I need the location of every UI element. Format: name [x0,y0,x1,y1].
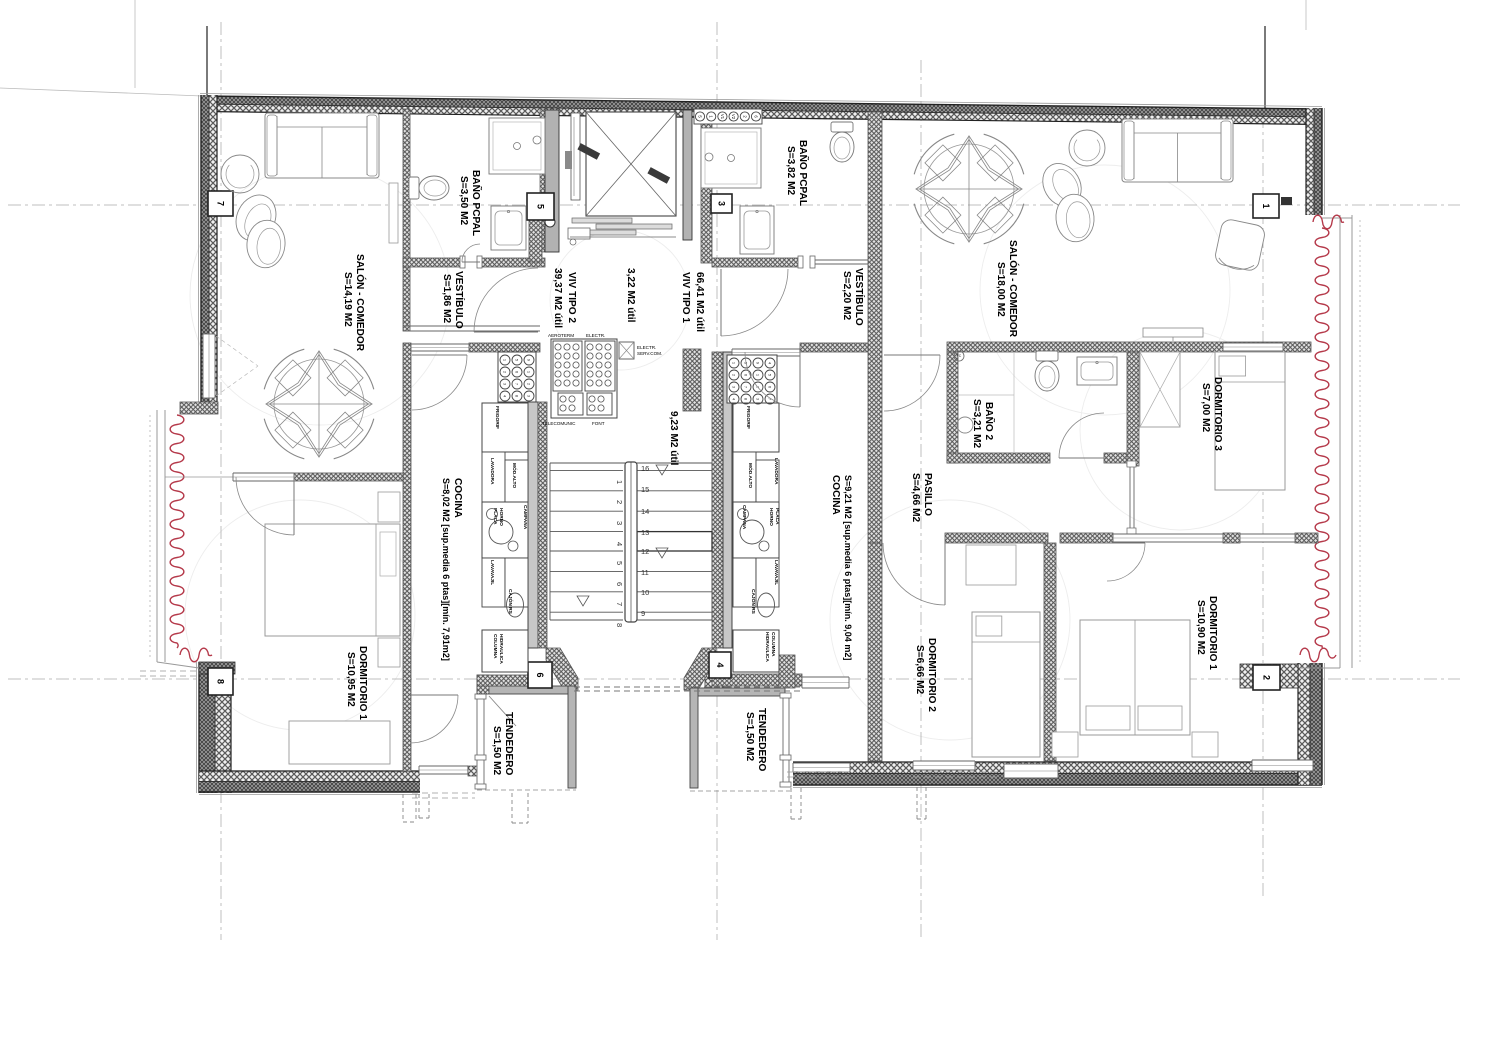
svg-text:V2: V2 [731,114,736,120]
svg-text:39,37 M2 útil: 39,37 M2 útil [552,268,563,328]
svg-text:VIV TIPO 1: VIV TIPO 1 [680,272,691,323]
svg-text:FC: FC [957,354,962,358]
svg-text:TELECOMUNIC: TELECOMUNIC [542,421,576,426]
svg-text:HIDRAULICA: HIDRAULICA [498,634,504,664]
svg-text:1: 1 [1261,203,1271,208]
svg-text:3: 3 [615,521,624,525]
svg-text:2: 2 [1262,675,1272,680]
svg-text:CAMPANA: CAMPANA [741,505,747,530]
svg-text:SERV.COM.: SERV.COM. [637,351,662,356]
svg-text:COLUMNA: COLUMNA [770,632,776,657]
svg-text:VESTÍBULO: VESTÍBULO [453,271,466,329]
svg-text:VIV TIPO 2: VIV TIPO 2 [566,272,577,323]
svg-text:S=3,50 M2: S=3,50 M2 [458,176,469,225]
svg-text:TENDEDERO: TENDEDERO [503,712,514,776]
svg-text:2: 2 [615,500,624,504]
svg-text:15: 15 [641,485,649,494]
svg-text:12: 12 [641,547,649,556]
svg-text:CAMPANA: CAMPANA [522,505,528,530]
svg-text:PLACA: PLACA [492,508,498,525]
svg-text:DORMITORIO 1: DORMITORIO 1 [357,646,368,720]
svg-text:FONT: FONT [592,421,605,426]
svg-text:COCINA: COCINA [452,478,463,519]
svg-text:BAÑO 2: BAÑO 2 [983,402,996,441]
svg-text:S=14,19 M2: S=14,19 M2 [342,272,353,327]
svg-text:6: 6 [615,582,624,586]
svg-text:1: 1 [615,480,624,484]
svg-text:FRIGORIF: FRIGORIF [745,406,751,429]
svg-text:LAVAVAJIL: LAVAVAJIL [773,560,779,585]
svg-text:COCINA: COCINA [830,475,841,516]
svg-text:BAÑO PCPAL: BAÑO PCPAL [797,140,810,206]
svg-text:4: 4 [715,662,725,667]
svg-text:7: 7 [216,201,226,206]
svg-text:14: 14 [641,507,649,516]
svg-text:ELECTR.: ELECTR. [586,333,605,338]
svg-text:AEROTERM: AEROTERM [548,333,574,338]
svg-text:S=10,90 M2: S=10,90 M2 [1195,600,1206,655]
svg-text:S=6,66 M2: S=6,66 M2 [914,645,925,694]
svg-text:VESTÍBULO: VESTÍBULO [853,268,866,326]
svg-text:HORNO: HORNO [498,508,504,526]
svg-text:3,22 M2 útil: 3,22 M2 útil [625,268,636,323]
svg-text:13: 13 [641,528,649,537]
svg-text:ELECTR.: ELECTR. [637,345,656,350]
svg-text:S=18,00 M2: S=18,00 M2 [995,262,1006,317]
svg-text:DORMITORIO 2: DORMITORIO 2 [926,638,937,712]
svg-text:V1: V1 [720,114,725,120]
svg-text:S=10,95 M2: S=10,95 M2 [345,652,356,707]
svg-text:LAVAVAJIL: LAVAVAJIL [489,560,495,585]
svg-text:FRIGORIF: FRIGORIF [494,406,500,429]
svg-text:5: 5 [615,561,624,565]
svg-text:6: 6 [535,672,545,677]
svg-text:S=1,50 M2: S=1,50 M2 [744,712,755,761]
svg-text:S=1,86 M2: S=1,86 M2 [441,274,452,323]
svg-text:9: 9 [641,609,645,618]
svg-text:S=1,50 M2: S=1,50 M2 [491,726,502,775]
svg-text:SALÓN - COMEDOR: SALÓN - COMEDOR [354,254,367,352]
svg-text:LAVADORA: LAVADORA [489,458,495,485]
svg-text:7: 7 [615,602,624,606]
svg-text:PLACA: PLACA [774,508,780,525]
svg-text:HORNO: HORNO [768,508,774,526]
svg-text:66,41 M2 útil: 66,41 M2 útil [694,272,705,332]
svg-text:HIDRAULICA: HIDRAULICA [764,632,770,662]
svg-text:3: 3 [717,201,727,206]
svg-text:16: 16 [641,464,649,473]
svg-text:COLUMNA: COLUMNA [492,634,498,659]
svg-text:10: 10 [641,588,649,597]
svg-text:S=3,82 M2: S=3,82 M2 [785,146,796,195]
svg-text:PASILLO: PASILLO [922,473,933,516]
svg-text:S=9,21 M2 [sup.media 6 ptas][m: S=9,21 M2 [sup.media 6 ptas][mín. 9,04 m… [843,475,853,660]
svg-text:S=8,02 M2 [sup.media 6 ptas][m: S=8,02 M2 [sup.media 6 ptas][mín. 7,91m2… [441,478,451,661]
svg-text:BAÑO PCPAL: BAÑO PCPAL [470,170,483,236]
svg-text:5: 5 [536,204,546,209]
svg-text:S=7,00 M2: S=7,00 M2 [1200,383,1211,432]
svg-text:S=4,66 M2: S=4,66 M2 [910,473,921,522]
svg-text:11: 11 [641,568,649,577]
svg-text:4: 4 [615,542,624,546]
svg-text:SALÓN - COMEDOR: SALÓN - COMEDOR [1007,240,1020,338]
svg-text:9,23 M2 útil: 9,23 M2 útil [668,411,679,466]
svg-text:LAVADORA: LAVADORA [773,458,779,485]
svg-text:DORMITORIO 3: DORMITORIO 3 [1212,377,1223,451]
svg-text:8: 8 [216,679,226,684]
svg-text:S=2,20 M2: S=2,20 M2 [841,271,852,320]
svg-text:TENDEDERO: TENDEDERO [756,708,767,772]
svg-text:8: 8 [615,623,624,627]
svg-text:S=3,21 M2: S=3,21 M2 [971,399,982,448]
svg-text:DORMITORIO 1: DORMITORIO 1 [1207,596,1218,670]
